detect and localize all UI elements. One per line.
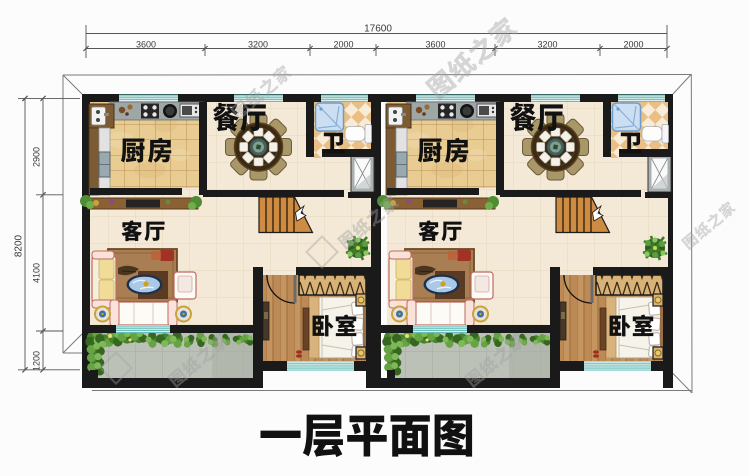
svg-text:4100: 4100: [32, 263, 42, 283]
svg-text:1200: 1200: [32, 351, 42, 371]
svg-text:2900: 2900: [32, 147, 42, 167]
svg-text:3600: 3600: [136, 39, 156, 49]
svg-text:3200: 3200: [537, 39, 557, 49]
svg-text:8200: 8200: [14, 234, 25, 257]
svg-text:2000: 2000: [333, 39, 353, 49]
svg-text:2000: 2000: [623, 39, 643, 49]
svg-text:17600: 17600: [364, 24, 392, 35]
svg-text:3200: 3200: [248, 39, 268, 49]
svg-text:3600: 3600: [425, 39, 445, 49]
